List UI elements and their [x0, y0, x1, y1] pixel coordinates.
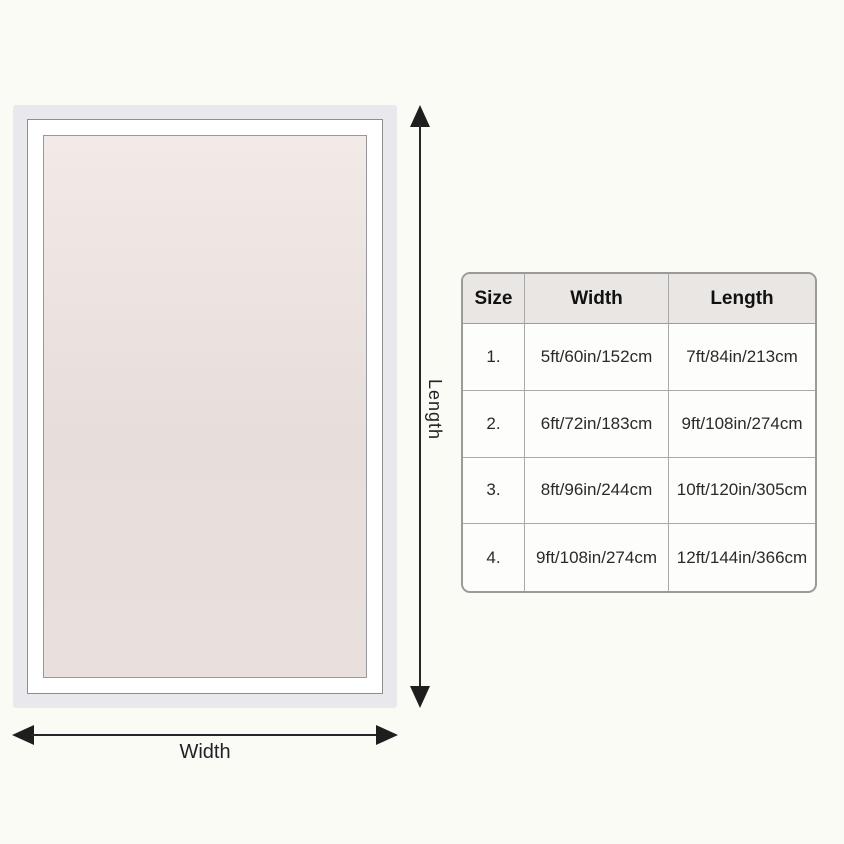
table-cell-width: 9ft/108in/274cm: [525, 524, 669, 591]
size-table: Size Width Length 1. 5ft/60in/152cm 7ft/…: [461, 272, 817, 593]
size-table-header-size: Size: [463, 274, 525, 324]
table-cell-length: 9ft/108in/274cm: [669, 391, 815, 458]
table-cell-length: 12ft/144in/366cm: [669, 524, 815, 591]
size-table-header-width: Width: [525, 274, 669, 324]
arrow-down-icon: [410, 686, 430, 708]
table-cell-size: 2.: [463, 391, 525, 458]
table-cell-length: 10ft/120in/305cm: [669, 458, 815, 525]
arrow-line: [31, 734, 379, 736]
table-cell-width: 5ft/60in/152cm: [525, 324, 669, 391]
length-label: Length: [424, 379, 445, 440]
width-label: Width: [12, 741, 398, 764]
rug-diagram-border-band: [27, 119, 383, 694]
table-cell-length: 7ft/84in/213cm: [669, 324, 815, 391]
rug-diagram-outer-band: [13, 105, 397, 708]
table-cell-width: 8ft/96in/244cm: [525, 458, 669, 525]
arrow-line: [419, 124, 421, 689]
table-cell-size: 1.: [463, 324, 525, 391]
rug-diagram-center-panel: [43, 135, 367, 678]
table-cell-size: 3.: [463, 458, 525, 525]
size-table-header-length: Length: [669, 274, 815, 324]
table-cell-width: 6ft/72in/183cm: [525, 391, 669, 458]
table-cell-size: 4.: [463, 524, 525, 591]
